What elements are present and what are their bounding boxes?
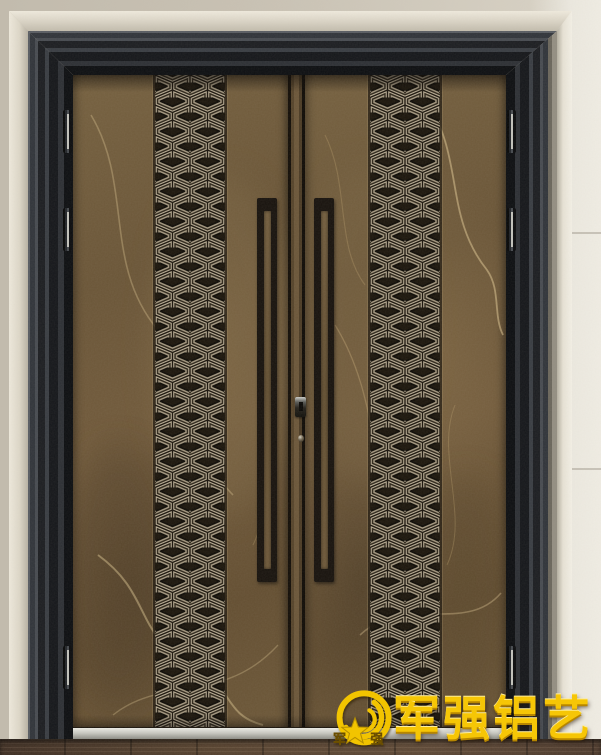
lock-cylinder: [295, 397, 306, 417]
pull-handle-right: [314, 198, 334, 582]
hinge-right-top: [507, 110, 516, 153]
keyhole: [298, 435, 304, 442]
hinge-left-bottom: [63, 646, 72, 689]
floor: [0, 739, 601, 755]
door-opening: [73, 75, 506, 727]
door-product-photo: 军 强 军强铝艺: [0, 0, 601, 755]
hinge-left-middle: [63, 208, 72, 251]
y-tessellation-pattern: [370, 75, 440, 727]
architrave-trim-top: [9, 11, 572, 31]
y-tessellation-pattern: [155, 75, 225, 727]
architrave-trim-right: [557, 11, 572, 739]
architrave-trim-left: [9, 11, 28, 739]
wall-tile-joint: [572, 468, 601, 470]
door-leaf-right: [305, 75, 506, 727]
handle-slot: [264, 211, 271, 569]
handle-slot: [321, 211, 328, 569]
hinge-right-bottom: [507, 646, 516, 689]
door-leaf-left: [73, 75, 288, 727]
relief-pattern-strip-left: [155, 75, 225, 727]
keyway-icon: [299, 402, 303, 411]
relief-pattern-strip-right: [370, 75, 440, 727]
threshold-sill: [73, 727, 506, 739]
hinge-right-middle: [507, 208, 516, 251]
pull-handle-left: [257, 198, 277, 582]
door-frame-top: [28, 31, 557, 75]
hinge-left-top: [63, 110, 72, 153]
wall-tile-joint: [572, 232, 601, 234]
